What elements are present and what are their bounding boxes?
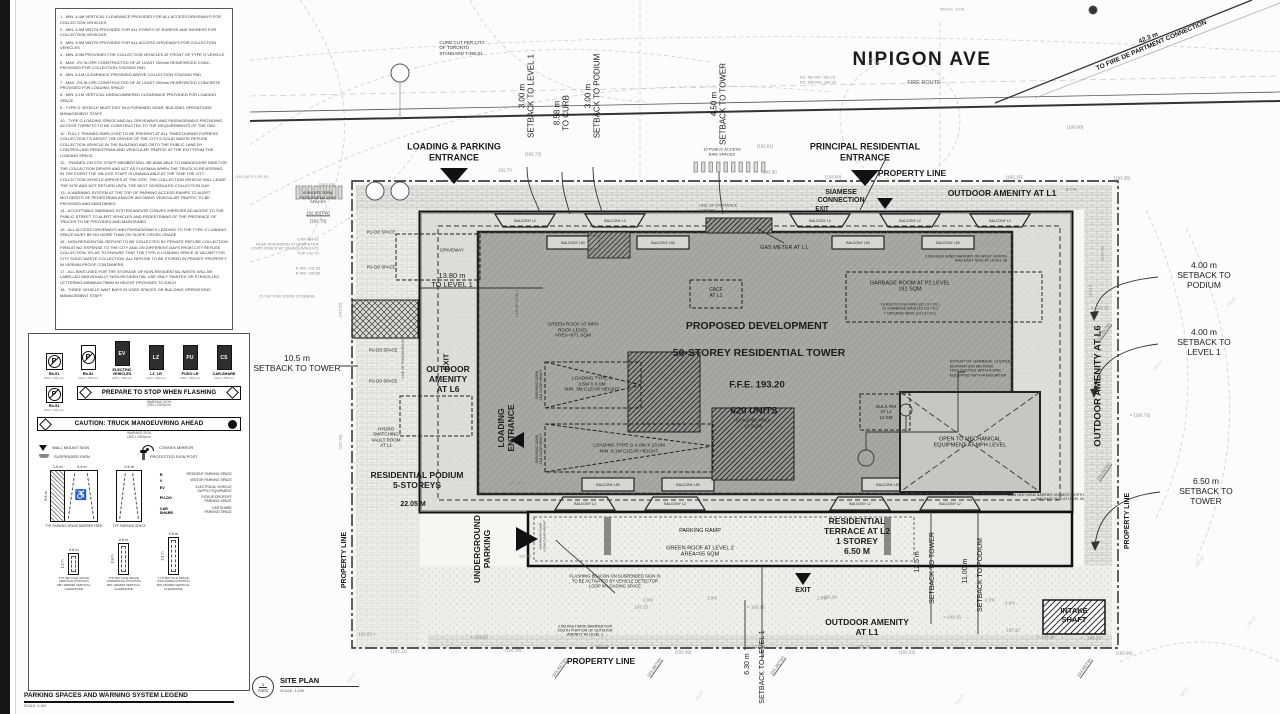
southwest-strip [356,512,420,648]
staging-block [712,408,794,480]
note-line: 12 - TRAINED ON-SITE STAFF MEMBER WILL B… [60,160,228,188]
symbol-label: PROTECTED SIGN POST [150,454,198,459]
symbol-label: WALL MOUNT SIGN [52,445,89,450]
drawing-title: SITE PLAN [280,676,359,687]
overhead-door-mark [604,517,611,555]
warning-sign-1-text: PREPARE TO STOP WHEN FLASHING [102,390,216,396]
legend-sign-row: PRb-51(300 x 300)mmPRb-52(300 x 450)mmEV… [37,341,241,380]
detail-sheet: A101 [258,688,269,693]
overhead-door-mark [884,517,891,555]
site-plan-titleblock: 1 A101 SITE PLAN SCALE: 1:150 [252,676,359,698]
key-code: V [160,479,176,483]
stall-typical: 2.6 m TYP. PARKING SPACE [113,465,146,528]
parking-sign-icon: LZ [149,345,164,370]
warning-sign-1-sub: WARNING SIGN (300 x 2000)mm [147,401,171,409]
legend-key-row: PU-DOPICKUP-DROPOFF PARKING SPACE [160,496,232,504]
legend-sign-rb-52: PRb-52(300 x 450)mm [71,345,105,380]
sheet-edge-bar [0,0,10,714]
note-line: 3 - MIN. 4.5M WIDTH PROVIDED FOR ALL ACC… [60,40,228,51]
legend-warning-1-row: PRb-51(300 x 300)mm PREPARE TO STOP WHEN… [37,386,241,413]
legend-sign-lz-lr: LZLZ_LR(300 x 450)mm [139,345,173,380]
stall-dim: 1.5 m [50,465,66,469]
mech-open-area [900,392,1040,492]
flashing-diamond-icon [226,386,239,399]
bike-space-diagram: 0.6 m1.2 mTYP. BICYCLE SPACE VERTICAL PO… [57,548,90,592]
barrier-free-aisle-hatch [51,471,66,521]
stall-barrier-free: 1.5 m 3.4 m 5.6 m ♿ TYP. PARKING SPACE B… [45,465,103,528]
flashing-diamond-icon [79,386,92,399]
legend-panel: PRb-51(300 x 300)mmPRb-52(300 x 450)mmEV… [28,333,250,691]
key-code: EV [160,486,176,494]
note-line: 8 - MIN. 6.1M VERTICAL UNENCUMBERED CLEA… [60,92,228,103]
legend-sign-car-share: CSCAR-SHARE(300 x 450)mm [207,345,241,380]
note-line: 9 - TYPE G VEHICLE MUST EXIT IN A FORWAR… [60,105,228,116]
wall-mount-sign-icon [39,445,47,451]
note-line: 15 - ALL ACCESS DRIVEWAYS AND PASSAGEWAY… [60,227,228,238]
sign-size: (300 x 450)mm [146,376,166,380]
sign-id: ELECTRIC VEHICLES [105,368,139,376]
legend-sign-rb-51: PRb-51(300 x 300)mm [37,386,71,413]
bike-caption: TYP. BICYCLE SPACE HORIZONTAL POSITION M… [106,577,140,592]
legend-key: RRESIDENT PARKING SPACEVVISITOR PARKING … [160,473,232,528]
symbol-label: SUSPENDED SIGN [54,454,90,459]
sign-size: (450 x 450)mm [180,376,200,380]
parking-sign-icon: PU [183,345,198,370]
bike-width-dim: 0.6 m [169,532,179,536]
sign-size: (300 x 300)mm [44,376,64,380]
bike-caption: TYP. BICYCLE SPACE STACKABLE POSITION MI… [157,577,190,592]
sheet-edge-line [15,0,16,714]
note-line: 6 - MIN. 6.1M CLEARANCE PROVIDED ABOVE C… [60,72,228,78]
beacon-icon [228,420,237,429]
parking-sign-icon: P [81,345,96,370]
parking-sign-icon: CS [217,345,232,370]
parking-ramp-area [534,517,914,561]
warning-sign-2: CAUTION: TRUCK MANOEUVRING AHEAD [37,417,241,431]
parking-sign-icon: P [46,353,63,370]
legend-symbols: WALL MOUNT SIGN CONVEX MIRROR SUSPENDED … [39,445,239,460]
key-label: VISITOR PARKING SPACE [180,479,232,483]
key-label: CAR SHARE PARKING SPACE [180,507,232,515]
legend-scale: SCALE: 1:100 [24,704,234,708]
bike-storage-block [352,300,418,338]
note-line: 14 - ACCEPTABLE WARNING SYSTEM AND/OR CO… [60,208,228,225]
drawing-scale: SCALE: 1:150 [280,689,359,693]
wheelchair-icon: ♿ [75,490,87,501]
stall-dim-height: 5.6 m [44,491,48,501]
detail-reference-bubble: 1 A101 [252,676,274,698]
south-edge-paving [428,634,1112,648]
legend-sign-rb51: PRb-51(300 x 300)mm [37,386,71,413]
sign-size: (300 x 300)mm [44,408,64,412]
key-label: RESIDENT PARKING SPACE [180,473,232,477]
bike-width-dim: 0.6 m [119,538,129,542]
bike-space-outline: 1.2 m [68,553,79,575]
west-drive-aisle [356,210,420,512]
key-label: PICKUP-DROPOFF PARKING SPACE [180,496,232,504]
key-code: PU-DO [160,496,176,504]
legend-sign-electric-vehicles: EVELECTRIC VEHICLES(300 x 450)mm [105,341,139,380]
legend-title: PARKING SPACES AND WARNING SYSTEM LEGEND [24,692,234,703]
note-line: 16 - NON-RESIDENTIAL REFUSE TO BE COLLEC… [60,239,228,267]
symbol-label: CONVEX MIRROR [159,445,193,450]
core-block [628,352,700,432]
key-code: CAR SHARE [160,507,176,515]
stall-caption: TYP. PARKING SPACE [113,524,146,528]
street-lines [250,0,1280,121]
legend-bike-spaces: 0.6 m1.2 mTYP. BICYCLE SPACE VERTICAL PO… [57,532,243,592]
legend-title-block: PARKING SPACES AND WARNING SYSTEM LEGEND… [24,692,234,708]
site-plan-sheet: NIPIGON AVEFIRE ROUTE42.3 m TO FIRE DE P… [0,0,1280,714]
legend-warning-2-row: CAUTION: TRUCK MANOEUVRING AHEAD WARNING… [37,417,241,440]
suspended-sign-icon [39,454,49,458]
legend-sign-pudo-lr: PUPUDO LR(450 x 450)mm [173,345,207,380]
note-line: 18 - THREE VEHICLE WAIT BAYS IN USED SPA… [60,287,228,298]
bike-height-dim: 1.8 m [111,554,115,563]
gas-meter-block [706,218,772,233]
warning-sign-1: PREPARE TO STOP WHEN FLASHING [77,386,241,400]
note-line: 1 - MIN. 4.4M VERTICAL CLEARANCE PROVIDE… [60,14,228,25]
sign-size: (300 x 450)mm [78,376,98,380]
key-label: ELECTRICAL VEHICLE SUPPLY EQUIPMENT [180,486,232,494]
parking-sign-icon: P [46,386,63,403]
bike-space-diagram: 0.6 m1.8 mTYP. BICYCLE SPACE HORIZONTAL … [106,538,140,592]
legend-sign-rb-51: PRb-51(300 x 300)mm [37,353,71,380]
intake-shaft-block [1043,600,1105,634]
legend-key-row: VVISITOR PARKING SPACE [160,479,232,483]
note-line: 13 - A WARNING SYSTEM AT THE TOP OF PARK… [60,190,228,207]
flashing-diamond-icon [39,418,52,431]
bike-height-dim: 2.1 m [160,551,164,560]
bike-caption: TYP. BICYCLE SPACE VERTICAL POSITION MIN… [57,577,90,592]
note-line: 4 - MIN. 8.0M PROVIDED FOR COLLECTION VE… [60,52,228,58]
sign-size: (300 x 450)mm [214,376,234,380]
bike-width-dim: 0.6 m [69,548,79,552]
bike-space-diagram: 0.6 m2.1 mTYP. BICYCLE SPACE STACKABLE P… [157,532,190,592]
bike-space-outline: 1.8 m [118,543,129,575]
warning-sign-2-text: CAUTION: TRUCK MANOEUVRING AHEAD [75,421,204,427]
parking-sign-icon: EV [115,341,130,366]
stall-dim: 3.4 m [66,465,98,469]
legend-key-row: RRESIDENT PARKING SPACE [160,473,232,477]
legend-parking-stalls: 1.5 m 3.4 m 5.6 m ♿ TYP. PARKING SPACE B… [45,465,243,528]
outdoor-amenity-l1-strip [356,185,1112,210]
key-code: R [160,473,176,477]
sign-size: (300 x 450)mm [112,376,132,380]
legend-key-row: CAR SHARECAR SHARE PARKING SPACE [160,507,232,515]
bike-height-dim: 1.2 m [61,559,65,568]
protected-sign-post-icon [142,453,145,460]
note-line: 2 - MIN. 4.5M WIDTH PROVIDED FOR ALL POI… [60,27,228,38]
note-line: 11 - FULLY TRAINED EMPLOYEE TO BE PRESEN… [60,131,228,159]
stall-dim: 2.6 m [116,465,142,469]
legend-key-row: EVELECTRICAL VEHICLE SUPPLY EQUIPMENT [160,486,232,494]
notes-panel: 1 - MIN. 4.4M VERTICAL CLEARANCE PROVIDE… [55,8,233,330]
warning-sign-2-sub: WARNING SIGN (300 x 2000)mm [127,432,151,440]
stall-caption: TYP. PARKING SPACE BARRIER FREE [45,524,103,528]
bike-space-outline: 2.1 m [168,537,179,575]
note-line: 7 - MAX. 2% SLOPE CONSTRUCTED OF AT LEAS… [60,80,228,91]
note-line: 17 - ALL BINS USED FOR THE STORAGE OF NO… [60,269,228,286]
note-line: 10 - TYPE G LOADING SPACE AND ALL DRIVEW… [60,118,228,129]
note-line: 5 - MAX. 2% SLOPE CONSTRUCTED OF AT LEAS… [60,60,228,71]
